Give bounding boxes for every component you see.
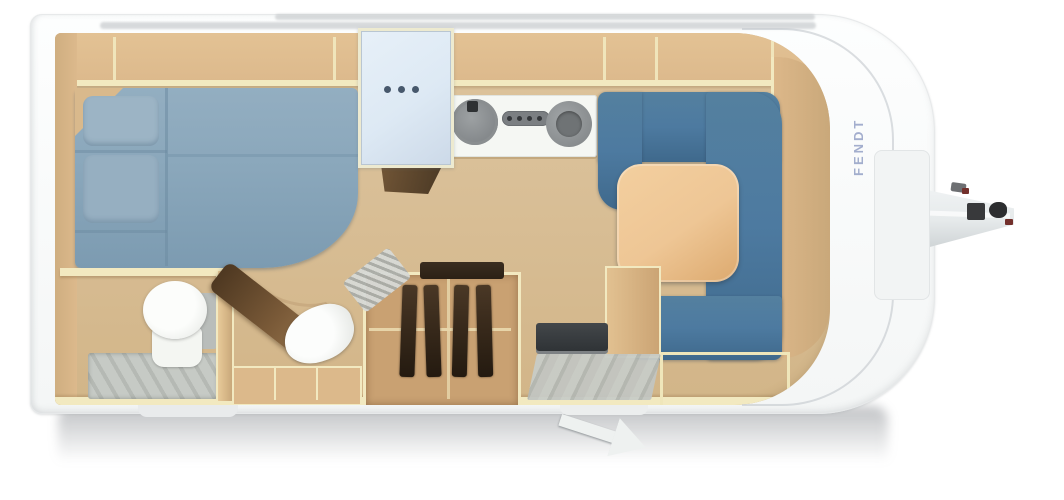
fridge-vent-dot (412, 86, 419, 93)
hitch-marker-red (1005, 219, 1013, 225)
fridge-vent-dot (384, 86, 391, 93)
roof-seam-line (100, 22, 816, 29)
kitchen-sink-bowl (556, 111, 582, 137)
sideboard (605, 266, 661, 358)
locker-divider (655, 37, 658, 81)
pillow (83, 155, 159, 223)
cabinet-divider (316, 368, 318, 400)
hanging-garment (476, 285, 493, 377)
control-knob (507, 116, 512, 121)
hanging-garment (399, 285, 417, 377)
mattress-seam (75, 230, 167, 233)
locker-divider (603, 37, 606, 81)
hanging-garment (423, 285, 441, 377)
refrigerator (358, 28, 454, 168)
locker-divider (113, 37, 116, 81)
pillow (83, 96, 159, 146)
caravan-floorplan: FENDT (0, 0, 1064, 500)
mattress-seam (75, 150, 167, 153)
toilet-bowl (143, 281, 207, 339)
hitch-coupling-head (989, 202, 1007, 218)
wardrobe-divider (447, 277, 450, 399)
control-knob (527, 116, 532, 121)
gas-locker (874, 150, 930, 300)
rear-wall (55, 33, 77, 405)
mattress-seam (168, 154, 358, 157)
heater-unit (536, 323, 608, 351)
brand-logo: FENDT (851, 58, 871, 176)
hitch-coupling-body (967, 203, 985, 220)
cabinet-divider (274, 368, 276, 400)
front-wall-curve (742, 28, 894, 406)
cooktop-knob (467, 101, 478, 112)
control-knob (517, 116, 522, 121)
roof-seam-line-upper (275, 14, 815, 20)
mattress-seam (165, 88, 168, 266)
dinette-table (617, 164, 739, 282)
bathroom-wall (60, 268, 228, 276)
control-knob (537, 116, 542, 121)
wardrobe-top-shelf (420, 262, 504, 279)
entry-step-mat (527, 354, 661, 400)
entry-arrow-shaft (558, 414, 621, 445)
locker-divider (333, 37, 336, 81)
vanity-cabinet (232, 366, 362, 405)
hitch-handle-red (962, 188, 969, 194)
underbody-tab-left (138, 404, 238, 417)
fridge-vent-dot (398, 86, 405, 93)
hanging-garment (452, 285, 469, 377)
